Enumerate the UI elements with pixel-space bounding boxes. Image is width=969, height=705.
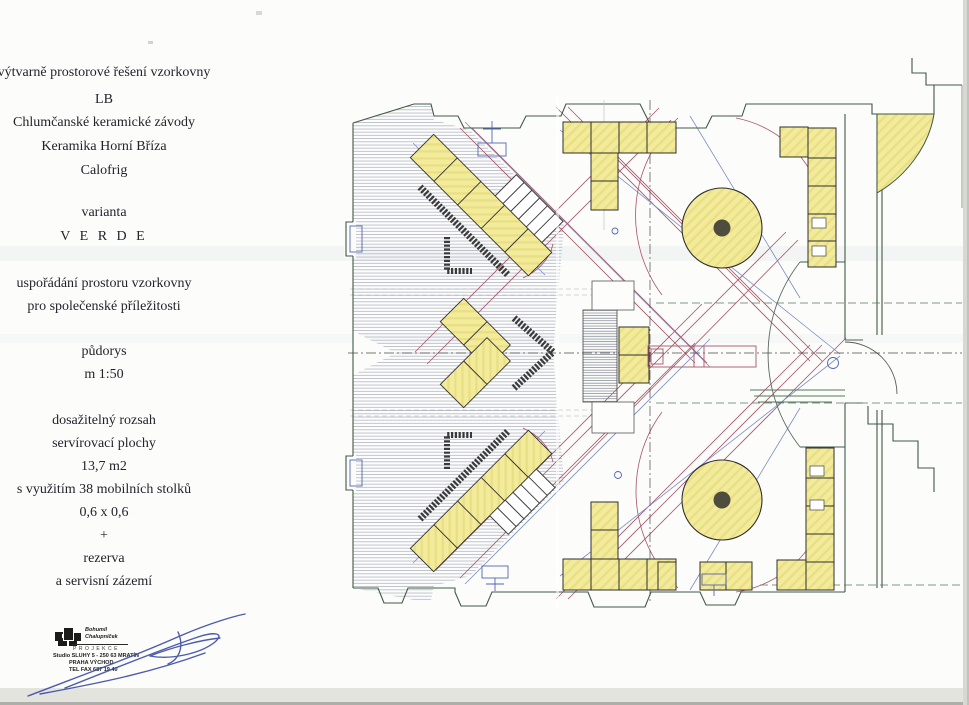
stairs-lower	[486, 465, 555, 534]
stamp-role: PROJEKCE	[73, 646, 120, 652]
hatched-floor-area	[344, 104, 564, 600]
stat-plus: +	[0, 527, 220, 544]
drawing-scale: m 1:50	[0, 366, 220, 383]
stairs-upper	[494, 175, 563, 244]
sight-lines-blue	[413, 116, 840, 590]
stat-area-value: 13,7 m2	[0, 458, 220, 475]
studio-name-line1: Bohumil	[85, 627, 107, 633]
stat-serving-area: servírovací plochy	[0, 435, 220, 452]
stat-reach: dosažitelný rozsah	[0, 412, 220, 429]
variant-name: V E R D E	[0, 228, 220, 245]
serving-table-red	[648, 346, 756, 367]
stat-service: a servisní zázemí	[0, 573, 220, 590]
table-pair-center	[619, 327, 649, 383]
client-calofrig: Calofrig	[0, 162, 220, 179]
table-group-top	[563, 122, 676, 210]
table-chain-mid-lower	[440, 338, 510, 408]
variant-label: varianta	[0, 204, 220, 221]
counter-top-right	[780, 127, 836, 267]
scan-crease	[556, 96, 559, 608]
scanned-drawing-page: výtvarně prostorové řešení vzorkovny LB …	[0, 0, 969, 705]
counter-fan-top-right	[877, 114, 934, 193]
studio-name-line2: Chalupníček	[85, 634, 118, 640]
table-chain-upper	[410, 134, 551, 275]
construction-lines	[350, 289, 630, 416]
round-table-bottom	[682, 460, 762, 540]
stamp-address-2: PRAHA VÝCHOD	[69, 660, 113, 666]
fixtures-blue	[350, 121, 839, 596]
studio-stamp: Bohumil Chalupníček PROJEKCE Studio SLUH…	[52, 624, 202, 680]
entrance-door	[845, 340, 897, 403]
table-chain-mid-upper	[440, 298, 510, 368]
central-core	[583, 281, 634, 433]
axis-lines	[348, 100, 962, 604]
table-chain-lower	[410, 430, 551, 571]
building-perimeter	[346, 58, 962, 607]
display-walls	[420, 187, 553, 519]
client-keramika: Keramika Horní Bříza	[0, 138, 220, 155]
stamp-phone: TEL FAX 687 19 40	[69, 667, 118, 673]
drawing-type: půdorys	[0, 343, 220, 360]
stat-table-size: 0,6 x 0,6	[0, 504, 220, 521]
stamp-divider	[72, 644, 128, 645]
round-table-top	[682, 188, 762, 268]
stat-reserve: rezerva	[0, 550, 220, 567]
reach-lines-red	[415, 107, 846, 599]
project-title: výtvarně prostorové řešení vzorkovny	[0, 64, 220, 81]
table-group-bottom	[563, 502, 752, 590]
purpose-line-1: uspořádání prostoru vzorkovny	[0, 275, 220, 292]
purpose-line-2: pro společenské příležitosti	[0, 298, 220, 315]
stat-tables: s využitím 38 mobilních stolků	[0, 481, 220, 498]
stamp-address-1: Studio SLUHY 5 - 250 63 MRATÍN	[53, 653, 139, 659]
client-lb: LB	[0, 91, 220, 108]
counter-bottom-right	[777, 448, 834, 590]
client-chlumcany: Chlumčanské keramické závody	[0, 114, 220, 131]
